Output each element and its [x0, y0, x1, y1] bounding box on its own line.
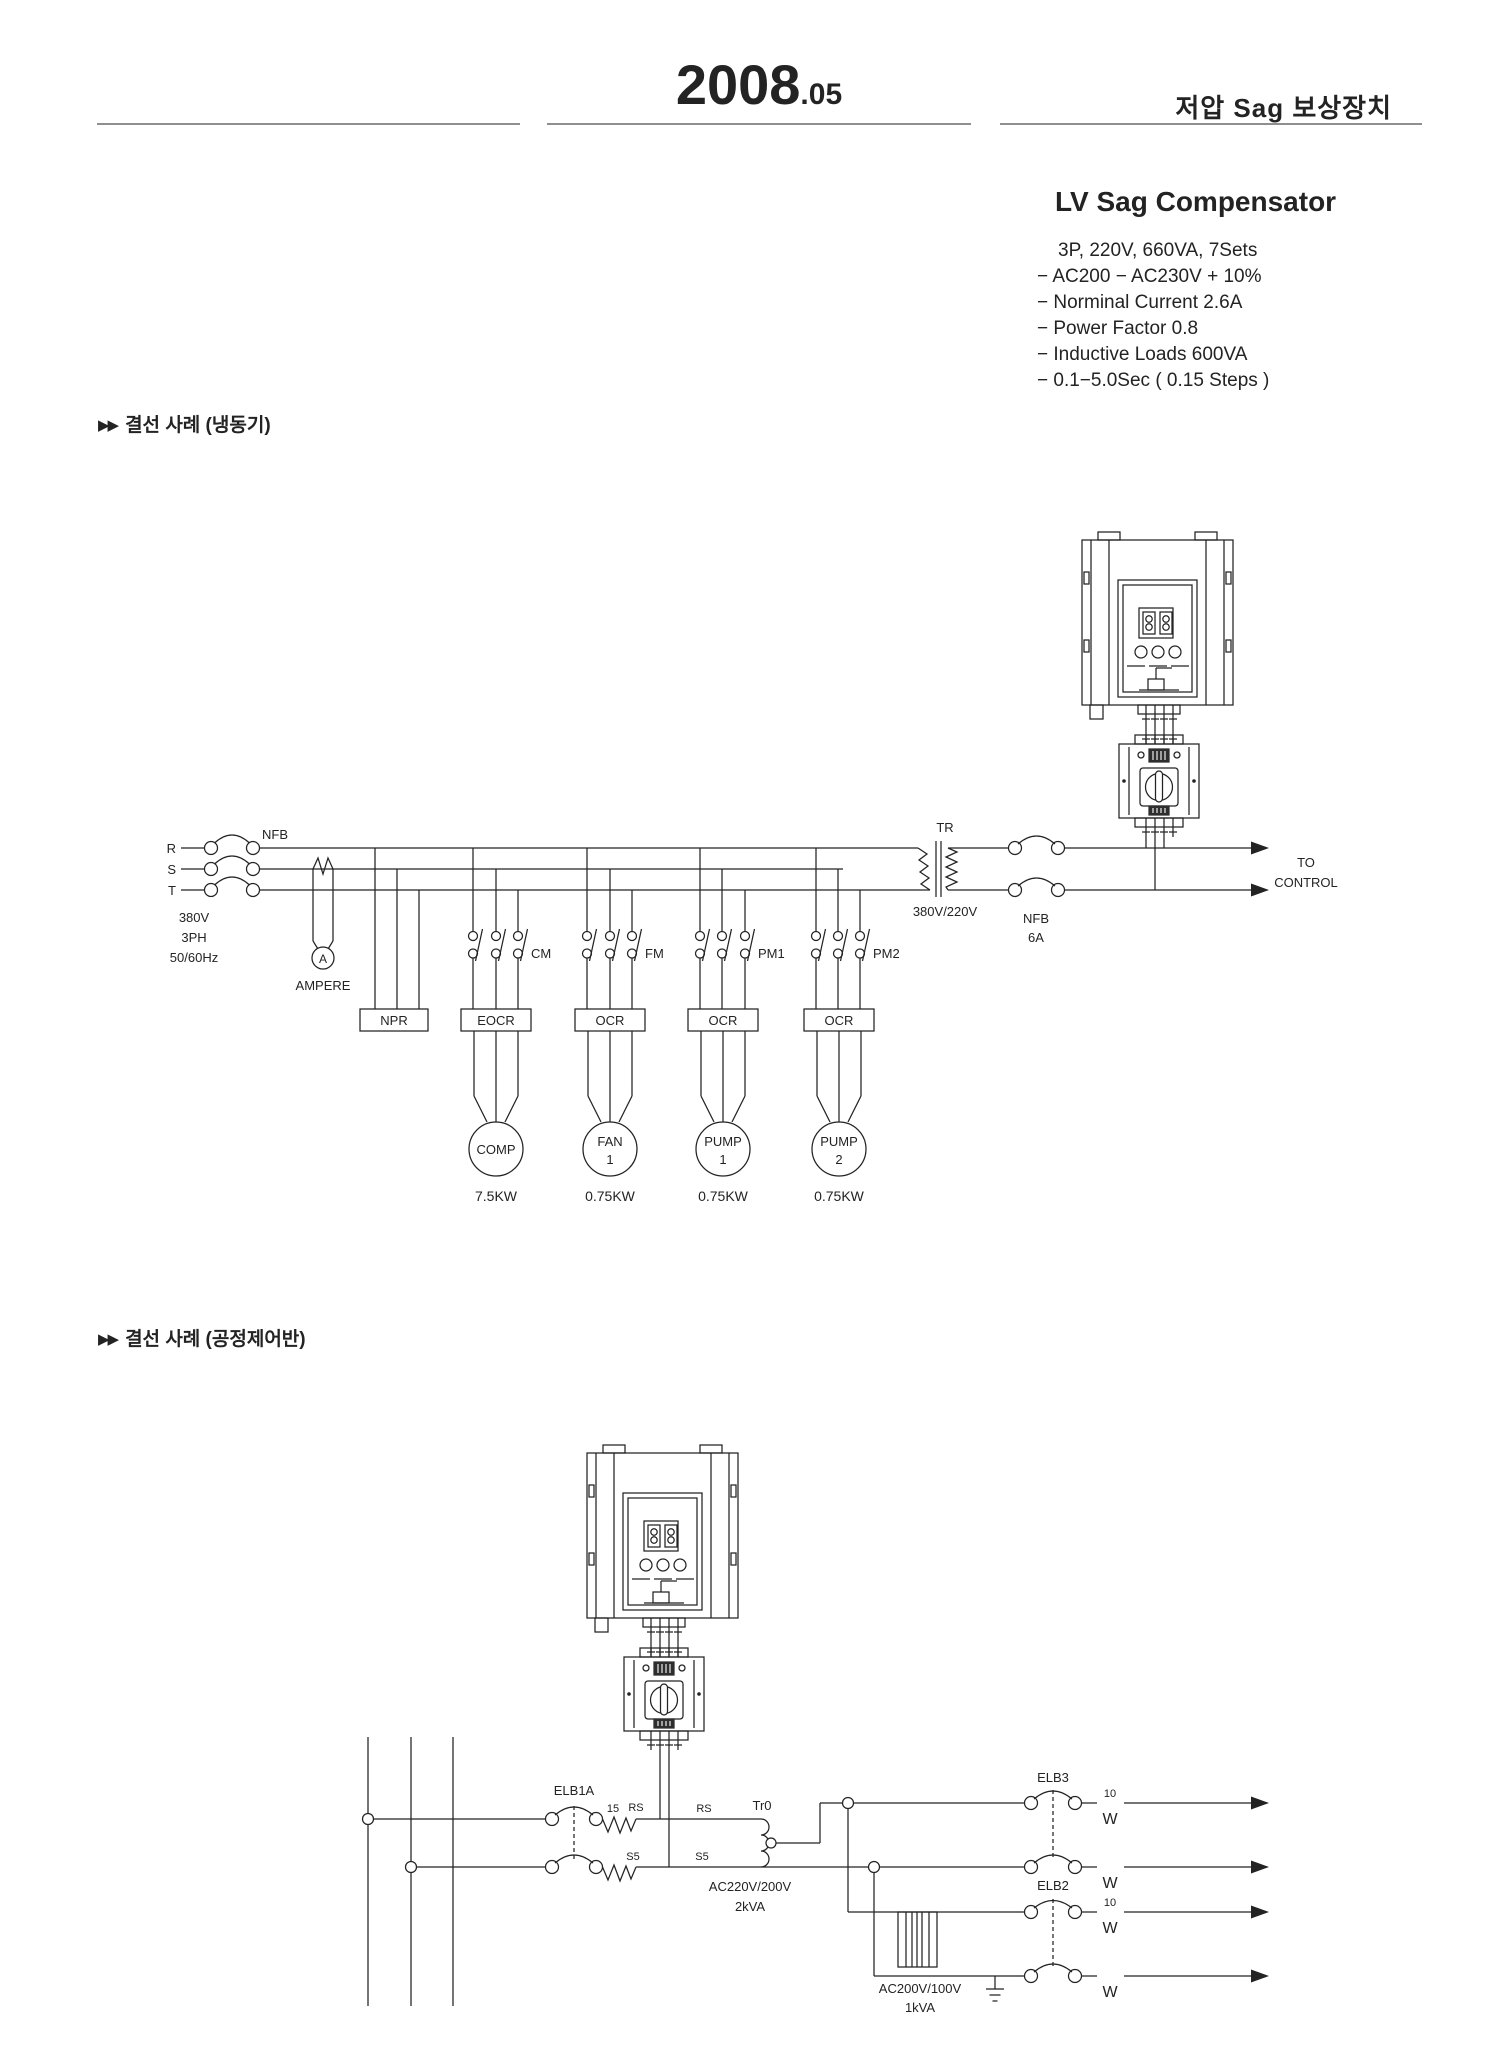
ground-symbol: [986, 1976, 1004, 2001]
motor-kw: 0.75KW: [814, 1188, 865, 1204]
motor-label: PUMP: [820, 1134, 858, 1149]
bus-lines: [260, 848, 931, 890]
label-elb3: ELB3: [1037, 1770, 1069, 1785]
motor-kw: 0.75KW: [585, 1188, 636, 1204]
to-control-output: TO CONTROL: [1065, 842, 1338, 897]
label-pm1: PM1: [758, 946, 785, 961]
output-row-4: W: [1082, 1970, 1270, 2002]
motor-comp: COMP 7.5KW: [469, 1031, 523, 1204]
label-pm2: PM2: [873, 946, 900, 961]
label-phase-s: S: [167, 862, 176, 877]
motor-label-2: 1: [719, 1152, 726, 1167]
switch-output-wires-1: [1142, 827, 1177, 890]
elb3-breaker: ELB3: [1025, 1770, 1082, 1874]
arrow-right-icon: [1251, 1797, 1269, 1810]
label-s5-2: S5: [695, 1851, 708, 1863]
label-rs-2: RS: [696, 1803, 711, 1815]
label-phase-r: R: [167, 841, 176, 856]
cm-contactor: CM EOCR: [461, 848, 551, 1031]
branch-feeders: [843, 1798, 1025, 1977]
diagram-refrigerator: R S T NFB 380V 3PH 50/60Hz: [167, 532, 1338, 1204]
label-tr: TR: [936, 820, 953, 835]
nfb-6a-breaker: NFB 6A: [1009, 836, 1065, 945]
arrow-right-icon: [1251, 1906, 1269, 1919]
unit-switch-wires-1: [1142, 714, 1177, 744]
compensator-unit-1: [1082, 532, 1233, 719]
tr-transformer: TR 380V/220V: [913, 820, 1009, 919]
label-tr-ratio: 380V/220V: [913, 904, 978, 919]
label-nfb6-amp: 6A: [1028, 930, 1044, 945]
label-w: W: [1102, 1811, 1118, 1828]
label-ocr: OCR: [825, 1013, 854, 1028]
elb2-breaker: ELB2: [1025, 1878, 1082, 1983]
motor-label: COMP: [477, 1142, 516, 1157]
motor-pump2: PUMP 2 0.75KW: [812, 1031, 866, 1204]
pm1-contactor: PM1 OCR: [688, 848, 785, 1031]
label-tr0-rating: AC220V/200V: [709, 1879, 792, 1894]
tr0-transformer: RS S5 Tr0 AC220V/200V 2kVA: [636, 1798, 1025, 1914]
label-ocr: OCR: [596, 1013, 625, 1028]
label-elb1a: ELB1A: [554, 1783, 595, 1798]
label-ampere: AMPERE: [296, 978, 351, 993]
compensator-unit-2: [587, 1445, 738, 1632]
arrow-right-icon: [1251, 1970, 1269, 1983]
motor-pump1: PUMP 1 0.75KW: [696, 1031, 750, 1204]
label-elb2: ELB2: [1037, 1878, 1069, 1893]
label-15: 15: [607, 1803, 619, 1815]
label-tr0: Tr0: [752, 1798, 771, 1813]
source-rating: 380V 3PH 50/60Hz: [170, 910, 218, 965]
output-row-2: W: [1082, 1861, 1270, 1893]
label-nfb6: NFB: [1023, 911, 1049, 926]
switch-output-wires-2: [647, 1740, 682, 1867]
unit-switch-wires-2: [647, 1627, 682, 1657]
label-tr0-kva: 2kVA: [735, 1899, 765, 1914]
pm2-contactor: PM2 OCR: [804, 848, 900, 1031]
arrow-right-icon: [1251, 884, 1269, 897]
label-ocr: OCR: [709, 1013, 738, 1028]
pt-transformer: AC200V/100V 1kVA: [879, 1912, 962, 2015]
wiring-diagrams: R S T NFB 380V 3PH 50/60Hz: [0, 0, 1500, 2058]
fm-contactor: FM OCR: [575, 848, 664, 1031]
label-control: CONTROL: [1274, 875, 1338, 890]
motor-label: FAN: [597, 1134, 622, 1149]
label-10: 10: [1104, 1897, 1116, 1909]
motor-kw: 7.5KW: [475, 1188, 518, 1204]
motor-label-2: 2: [835, 1152, 842, 1167]
label-fm: FM: [645, 946, 664, 961]
label-eocr: EOCR: [477, 1013, 515, 1028]
npr-relay: NPR: [360, 848, 428, 1031]
label-pt-kva: 1kVA: [905, 2000, 935, 2015]
motor-label-2: 1: [606, 1152, 613, 1167]
motor-fan1: FAN 1 0.75KW: [583, 1031, 637, 1204]
arrow-right-icon: [1251, 1861, 1269, 1874]
label-w: W: [1102, 1920, 1118, 1937]
motor-kw: 0.75KW: [698, 1188, 749, 1204]
label-cm: CM: [531, 946, 551, 961]
label-source-phase: 3PH: [181, 930, 206, 945]
catalog-page: { "colors": { "paper": "#ffffff", "ink":…: [0, 0, 1500, 2058]
output-row-1: 10 W: [1082, 1788, 1270, 1828]
output-row-3: 10 W: [1082, 1897, 1270, 1937]
label-w: W: [1102, 1875, 1118, 1892]
label-npr: NPR: [380, 1013, 407, 1028]
label-source-voltage: 380V: [179, 910, 210, 925]
label-10: 10: [1104, 1788, 1116, 1800]
label-nfb: NFB: [262, 827, 288, 842]
label-rs: RS: [628, 1802, 643, 1814]
diagram-process-panel: ELB1A 15 RS S5 RS S5 Tr0: [363, 1445, 1270, 2015]
label-pt-rating: AC200V/100V: [879, 1981, 962, 1996]
arrow-right-icon: [1251, 842, 1269, 855]
ammeter-symbol: A: [319, 952, 327, 966]
rotary-switch-1: [1119, 735, 1199, 827]
ammeter: A AMPERE: [296, 858, 351, 993]
label-to: TO: [1297, 855, 1315, 870]
label-s5: S5: [626, 1851, 639, 1863]
label-phase-t: T: [168, 883, 176, 898]
label-source-freq: 50/60Hz: [170, 950, 218, 965]
label-w: W: [1102, 1984, 1118, 2001]
motor-label: PUMP: [704, 1134, 742, 1149]
main-nfb-breaker: R S T NFB: [167, 827, 288, 898]
elb1a-breaker: ELB1A 15 RS S5: [363, 1783, 644, 1881]
rotary-switch-2: [624, 1648, 704, 1740]
